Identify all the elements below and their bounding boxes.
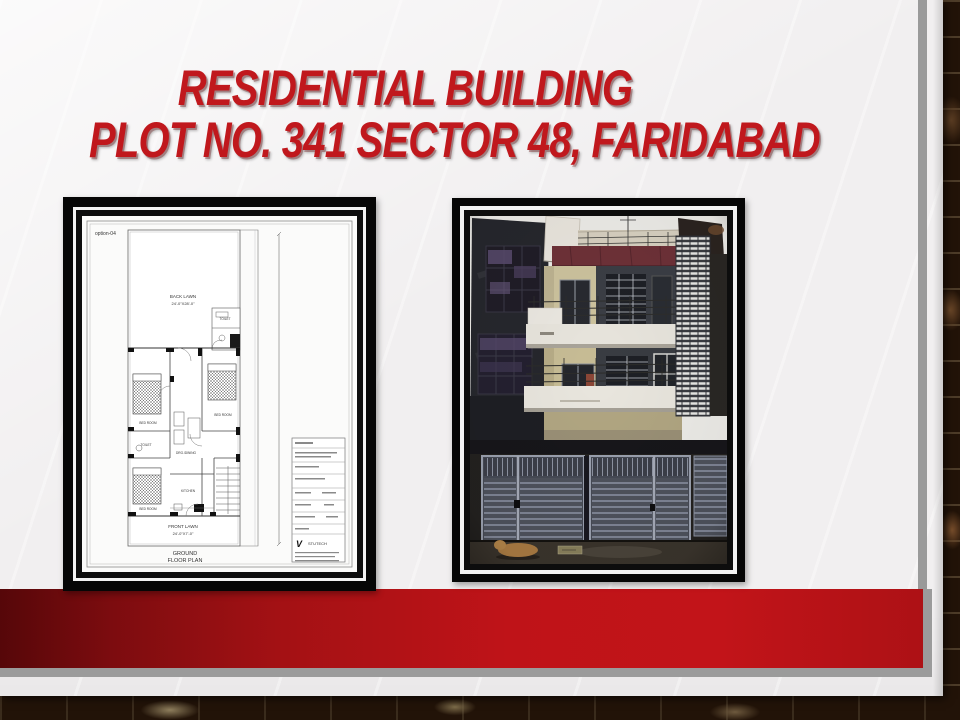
title-line-2: PLOT NO. 341 SECTOR 48, FARIDABAD	[89, 114, 721, 166]
paper-edge-shadow	[933, 0, 943, 696]
plan-caption-line1: GROUND	[173, 551, 197, 557]
paper-edge-gray-strip	[918, 0, 927, 677]
toilet2-label: TOILET	[219, 317, 230, 321]
plan-option-label: option-04	[95, 231, 116, 237]
bedroom3-label: BED ROOM	[139, 507, 157, 511]
titleblock-logo-text: STUTECH	[308, 541, 327, 546]
title-line-1: RESIDENTIAL BUILDING	[89, 62, 721, 114]
bedroom2-label: BED ROOM	[214, 413, 232, 417]
plan-caption-line2: FLOOR PLAN	[168, 558, 203, 564]
red-accent-bar	[0, 589, 923, 668]
dining-label: DRG./DINING	[176, 451, 197, 455]
floor-plan-drawing: option-04 BACK LAWN 24'-0"X28'-0"	[82, 216, 357, 572]
red-bar-gray-edge-bottom	[0, 668, 932, 677]
back-lawn-label: BACK LAWN	[170, 294, 196, 299]
front-lawn-dim: 24'-0"X7'-0"	[173, 531, 194, 536]
slide: RESIDENTIAL BUILDING PLOT NO. 341 SECTOR…	[0, 0, 960, 720]
red-bar-gray-edge-right	[923, 589, 932, 677]
back-lawn-dim: 24'-0"X28'-0"	[171, 301, 195, 306]
bedroom1-label: BED ROOM	[139, 421, 157, 425]
building-photo-frame	[452, 198, 745, 582]
front-lawn-label: FRONT LAWN	[168, 524, 198, 529]
titleblock-logo-v: V	[296, 539, 303, 549]
kitchen-label: KITCHEN	[181, 489, 196, 493]
toilet1-label: TOILET	[140, 443, 151, 447]
building-photo	[470, 216, 727, 564]
floor-plan-frame: option-04 BACK LAWN 24'-0"X28'-0"	[63, 197, 376, 591]
slide-title: RESIDENTIAL BUILDING PLOT NO. 341 SECTOR…	[10, 62, 800, 166]
